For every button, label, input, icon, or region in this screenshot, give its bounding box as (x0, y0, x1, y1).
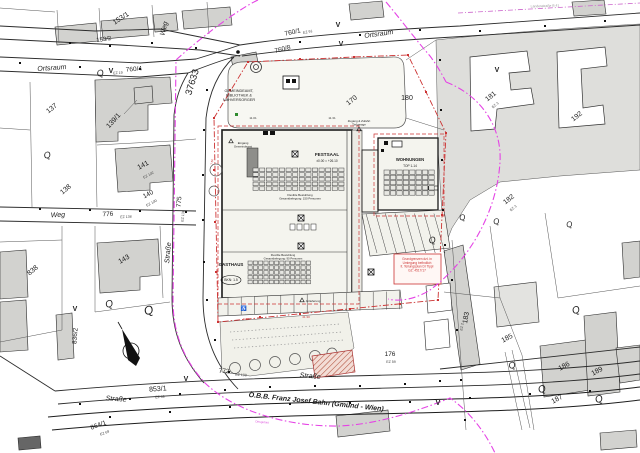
dim-750: 7.50 (210, 159, 215, 165)
arcade-strip (352, 130, 362, 298)
parcel-853-1: 853/1 (149, 385, 167, 393)
parcel-138: 138 (59, 183, 73, 196)
street-strasse-bottom-left: Straße (105, 395, 127, 403)
parcel-37633: 37633 (183, 68, 201, 96)
festsaal-level: ±0.00 = +26.10 (316, 159, 338, 163)
gemeindeamt-label: GEMEINDEAMT,BIBLIOTHEK &NAHVERSORGER (223, 89, 256, 102)
parcel-760-8: 760/8 (274, 44, 292, 55)
ez-136: EZ 136 (181, 210, 186, 222)
ez-91: EZ 91 (303, 29, 313, 35)
equipment-icon (292, 151, 298, 157)
equipment-icon (298, 243, 304, 249)
parcel-772: 772 (218, 368, 230, 376)
parcel-776: 776 (102, 211, 114, 219)
parcel-137: 137 (45, 102, 59, 115)
parcel-836-2: 836/2 (71, 327, 79, 344)
equipment-icon (368, 269, 374, 275)
survey-mark-v-2: V (339, 41, 344, 48)
garden-symbol-q-3: Q (104, 298, 115, 311)
ez-69: EZ 69 (99, 430, 109, 437)
stair-icon (392, 141, 402, 147)
ez-100: EZ 100 (145, 199, 157, 208)
festsaal-label: FESTSAAL (315, 152, 339, 157)
street-ortsraum-left: Ortsraum (37, 64, 67, 73)
dim-4130: 41.30 (302, 315, 310, 319)
parcel-176: 176 (385, 351, 396, 358)
ez-19: EZ 19 (113, 71, 123, 76)
parcel-760-4: 760/4 (126, 65, 143, 73)
survey-mark-v-6: V (184, 376, 189, 383)
survey-mark-v-5: V (73, 306, 78, 313)
anlieferung-label: Anlieferung (306, 299, 321, 303)
ez-108: EZ 108 (235, 373, 247, 378)
wohnungen-label: WOHNUNGEN (396, 157, 424, 162)
street-strasse-bottom-center: Straße (299, 372, 321, 381)
north-arrow (118, 322, 140, 366)
connector-building (362, 150, 378, 212)
street-ortsraum-top: Ortsraum (364, 29, 394, 40)
ez-138: EZ 138 (120, 215, 132, 220)
garden-symbol-q-8: Q (565, 219, 573, 229)
zone-right (436, 24, 640, 248)
ez-59-176: EZ 59 (386, 360, 396, 364)
bkn-badge: BKN: 1.5 (224, 278, 238, 282)
dim-1131: 11.31 (328, 116, 336, 120)
site-plan (209, 57, 450, 376)
dim-600: 6.00 (243, 317, 249, 321)
equipment-icon (298, 215, 304, 221)
ortsgebiet-label: Ortsgebiet (255, 419, 269, 424)
survey-mark-v-1: V (336, 22, 341, 29)
parcel-760-1: 760/1 (284, 27, 302, 37)
parcel-153-2: 153/2 (96, 36, 112, 44)
street-weg-left: Weg (51, 212, 66, 220)
parcel-838: 838 (26, 264, 40, 277)
lift-icon (384, 141, 388, 145)
parcel-185: 185 (500, 333, 514, 345)
parcel-180: 180 (401, 95, 413, 102)
ez-3-182: EZ 3 (509, 204, 517, 212)
parcel-775: 775 (176, 196, 184, 208)
survey-mark-v-3: V (109, 68, 114, 75)
garden-symbol-q-9: Q (571, 304, 582, 317)
wohnungen-top: TOP 1-14 (403, 164, 417, 168)
garden-symbol-q-1: Q (96, 67, 105, 78)
bike-shelter-icon (283, 76, 299, 89)
site-plan-drawing: OrtsraumOrtsraumWegWegStraßeStraßeStraße… (0, 0, 640, 453)
garden-symbol-q-7: Q (492, 216, 500, 226)
garden-symbol-q-2: Q (43, 149, 52, 160)
gasthaus-label: GASTHAUS (219, 262, 244, 267)
dim-1101: 11.01 (249, 116, 257, 120)
street-strasse-left: Straße (164, 242, 173, 264)
garden-symbol-q-4: Q (142, 302, 156, 318)
ez-59-853: EZ 59 (155, 395, 165, 400)
survey-mark-v-7: V (436, 400, 441, 407)
garden-symbol-q-6: Q (458, 212, 466, 222)
site-plan-canvas: OrtsraumOrtsraumWegWegStraßeStraßeStraße… (0, 0, 640, 453)
wheelchair-symbol: ♿ (241, 305, 247, 312)
survey-mark-v-4: V (495, 67, 500, 74)
green-marker-icon (235, 113, 238, 116)
